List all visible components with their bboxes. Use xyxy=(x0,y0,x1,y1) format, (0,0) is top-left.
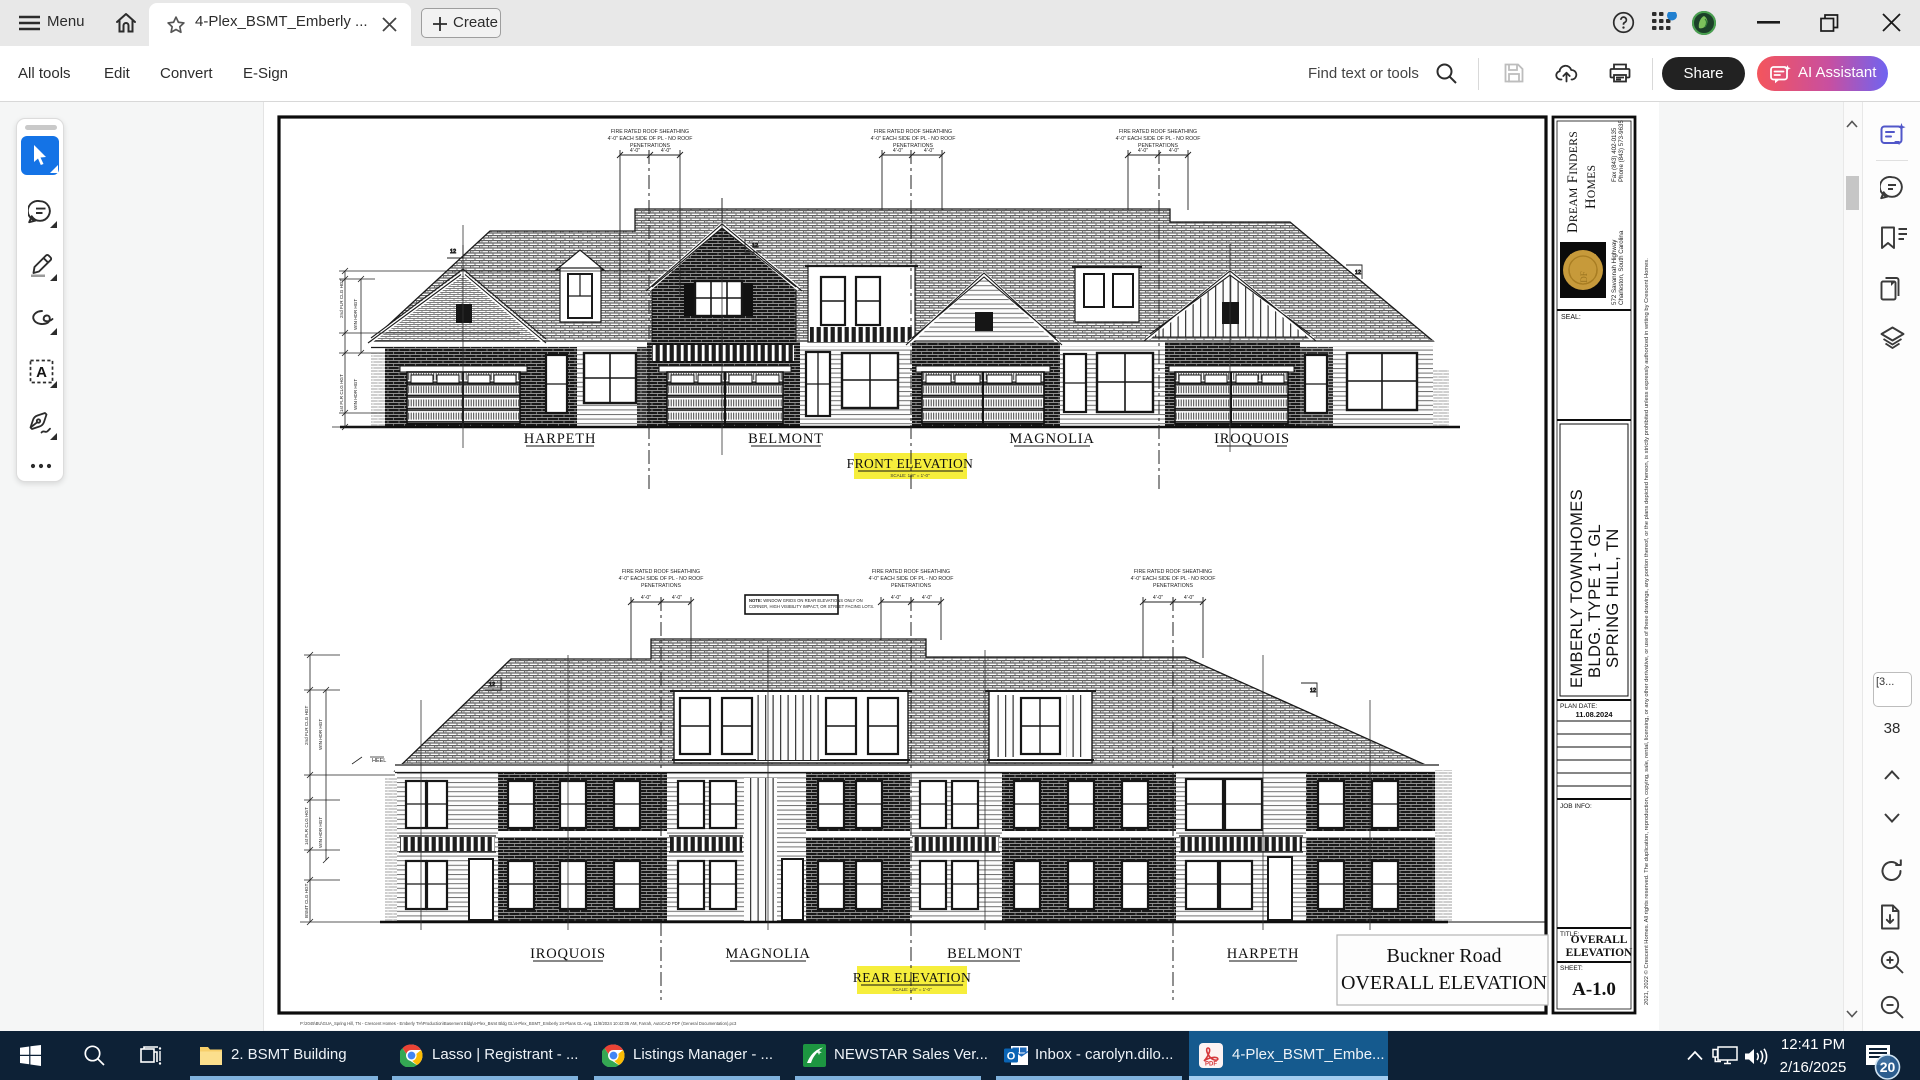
svg-text:2021, 2022 © Crescent Homes. A: 2021, 2022 © Crescent Homes. All rights … xyxy=(1643,258,1650,1005)
svg-text:FIRE RATED ROOF SHEATHING: FIRE RATED ROOF SHEATHING xyxy=(872,569,950,575)
svg-text:MAGNOLIA: MAGNOLIA xyxy=(1009,431,1094,447)
svg-text:A-1.0: A-1.0 xyxy=(1572,979,1616,1000)
svg-text:BELMONT: BELMONT xyxy=(947,946,1023,962)
svg-text:PLAN DATE:: PLAN DATE: xyxy=(1560,703,1598,710)
svg-text:Fax (843) 402-0135: Fax (843) 402-0135 xyxy=(1611,127,1618,182)
svg-text:PENETRATIONS: PENETRATIONS xyxy=(891,583,932,589)
svg-text:4'-0": 4'-0" xyxy=(924,148,934,154)
svg-text:20: 20 xyxy=(1880,1059,1896,1075)
svg-text:BELMONT: BELMONT xyxy=(748,431,824,447)
svg-text:DF: DF xyxy=(1579,271,1589,283)
svg-text:12: 12 xyxy=(1355,270,1361,276)
svg-text:11.08.2024: 11.08.2024 xyxy=(1575,710,1613,719)
svg-text:P:\2045\BU\GUA_Spring Hill, TN: P:\2045\BU\GUA_Spring Hill, TN - Crescen… xyxy=(300,1021,737,1026)
svg-text:4'-0": 4'-0" xyxy=(891,595,901,601)
svg-text:WIN HDR HGT: WIN HDR HGT xyxy=(353,379,358,410)
svg-text:WIN HDR HGT: WIN HDR HGT xyxy=(318,719,323,750)
svg-text:Buckner Road: Buckner Road xyxy=(1387,945,1502,967)
svg-text:PENETRATIONS: PENETRATIONS xyxy=(1153,583,1194,589)
svg-text:4'-0": 4'-0" xyxy=(893,148,903,154)
svg-text:4'-0" EACH SIDE OF PL - NO ROO: 4'-0" EACH SIDE OF PL - NO ROOF xyxy=(871,136,956,142)
svg-text:4'-0" EACH SIDE OF PL - NO ROO: 4'-0" EACH SIDE OF PL - NO ROOF xyxy=(1116,136,1201,142)
svg-text:12: 12 xyxy=(450,249,456,255)
svg-text:4'-0": 4'-0" xyxy=(630,148,640,154)
svg-text:4'-0": 4'-0" xyxy=(1153,595,1163,601)
svg-text:4'-0": 4'-0" xyxy=(641,595,651,601)
svg-text:4'-0": 4'-0" xyxy=(1169,148,1179,154)
svg-text:4'-0" EACH SIDE OF PL - NO ROO: 4'-0" EACH SIDE OF PL - NO ROOF xyxy=(869,576,954,582)
svg-text:4'-0" EACH SIDE OF PL - NO ROO: 4'-0" EACH SIDE OF PL - NO ROOF xyxy=(619,576,704,582)
svg-text:SCALE: 1/8" = 1'-0": SCALE: 1/8" = 1'-0" xyxy=(892,987,932,992)
svg-text:4'-0": 4'-0" xyxy=(922,595,932,601)
svg-text:EMBERLY TOWNHOMES: EMBERLY TOWNHOMES xyxy=(1568,489,1586,688)
svg-text:FIRE RATED ROOF SHEATHING: FIRE RATED ROOF SHEATHING xyxy=(611,129,689,135)
svg-text:IROQUOIS: IROQUOIS xyxy=(1214,431,1290,447)
svg-text:BSMT CLG HGT: BSMT CLG HGT xyxy=(304,883,309,918)
svg-text:4'-0": 4'-0" xyxy=(1138,148,1148,154)
svg-text:572 Savannah Highway: 572 Savannah Highway xyxy=(1611,239,1618,305)
svg-text:ELEVATION: ELEVATION xyxy=(1566,947,1633,959)
svg-text:1st FLR CLG HGT: 1st FLR CLG HGT xyxy=(304,807,309,845)
svg-text:HOMES: HOMES xyxy=(1583,165,1599,209)
svg-text:SPRING HILL, TN: SPRING HILL, TN xyxy=(1604,528,1622,668)
svg-text:WIN HDR HGT: WIN HDR HGT xyxy=(318,817,323,848)
svg-text:CORNER, HIGH VISIBILITY IMPACT: CORNER, HIGH VISIBILITY IMPACT, OR STREE… xyxy=(749,604,874,609)
svg-text:JOB INFO:: JOB INFO: xyxy=(1560,803,1592,810)
svg-text:A: A xyxy=(36,364,47,381)
svg-text:4'-0" EACH SIDE OF PL - NO ROO: 4'-0" EACH SIDE OF PL - NO ROOF xyxy=(608,136,693,142)
svg-text:SEAL:: SEAL: xyxy=(1561,314,1581,321)
svg-text:PENETRATIONS: PENETRATIONS xyxy=(641,583,682,589)
svg-text:FIRE RATED ROOF SHEATHING: FIRE RATED ROOF SHEATHING xyxy=(622,569,700,575)
svg-text:12: 12 xyxy=(1310,688,1316,694)
svg-text:BLDG. TYPE 1 - GL: BLDG. TYPE 1 - GL xyxy=(1586,524,1604,678)
svg-text:4'-0" EACH SIDE OF PL - NO ROO: 4'-0" EACH SIDE OF PL - NO ROOF xyxy=(1131,576,1216,582)
svg-text:Charleston, South Carolina: Charleston, South Carolina xyxy=(1618,230,1625,305)
svg-text:2nd FLR CLG HGT: 2nd FLR CLG HGT xyxy=(304,705,309,745)
svg-text:12: 12 xyxy=(752,243,758,249)
svg-text:SCALE: 1/8" = 1'-0": SCALE: 1/8" = 1'-0" xyxy=(890,473,930,478)
svg-text:OVERALL ELEVATION: OVERALL ELEVATION xyxy=(1341,972,1547,994)
svg-text:OVERALL: OVERALL xyxy=(1571,934,1628,946)
svg-text:DREAM FINDERS: DREAM FINDERS xyxy=(1565,131,1581,233)
svg-text:MAGNOLIA: MAGNOLIA xyxy=(725,946,810,962)
svg-text:FIRE RATED ROOF SHEATHING: FIRE RATED ROOF SHEATHING xyxy=(874,129,952,135)
svg-text:IROQUOIS: IROQUOIS xyxy=(530,946,606,962)
svg-text:FIRE RATED ROOF SHEATHING: FIRE RATED ROOF SHEATHING xyxy=(1134,569,1212,575)
svg-text:2nd FLR CLG HGT: 2nd FLR CLG HGT xyxy=(339,278,344,318)
svg-text:Phone (843) 573-9635: Phone (843) 573-9635 xyxy=(1618,120,1625,182)
svg-text:4'-0": 4'-0" xyxy=(1184,595,1194,601)
svg-text:12: 12 xyxy=(489,682,495,688)
svg-text:FIRE RATED ROOF SHEATHING: FIRE RATED ROOF SHEATHING xyxy=(1119,129,1197,135)
svg-text:O: O xyxy=(1007,1051,1016,1063)
svg-text:1st FLR CLG HGT: 1st FLR CLG HGT xyxy=(339,374,344,412)
svg-text:4'-0": 4'-0" xyxy=(672,595,682,601)
svg-text:WIN HDR HGT: WIN HDR HGT xyxy=(353,299,358,330)
svg-text:SHEET:: SHEET: xyxy=(1560,965,1583,972)
svg-text:HEEL: HEEL xyxy=(372,758,386,764)
svg-text:REAR ELEVATION: REAR ELEVATION xyxy=(853,970,971,985)
svg-text:HARPETH: HARPETH xyxy=(524,431,596,447)
svg-text:PDF: PDF xyxy=(1205,1062,1217,1068)
svg-text:4'-0": 4'-0" xyxy=(661,148,671,154)
svg-text:HARPETH: HARPETH xyxy=(1227,946,1299,962)
svg-text:FRONT ELEVATION: FRONT ELEVATION xyxy=(847,456,974,471)
svg-text:NOTE: WINDOW GRIDS ON REAR ELE: NOTE: WINDOW GRIDS ON REAR ELEVATIONS ON… xyxy=(749,598,863,603)
